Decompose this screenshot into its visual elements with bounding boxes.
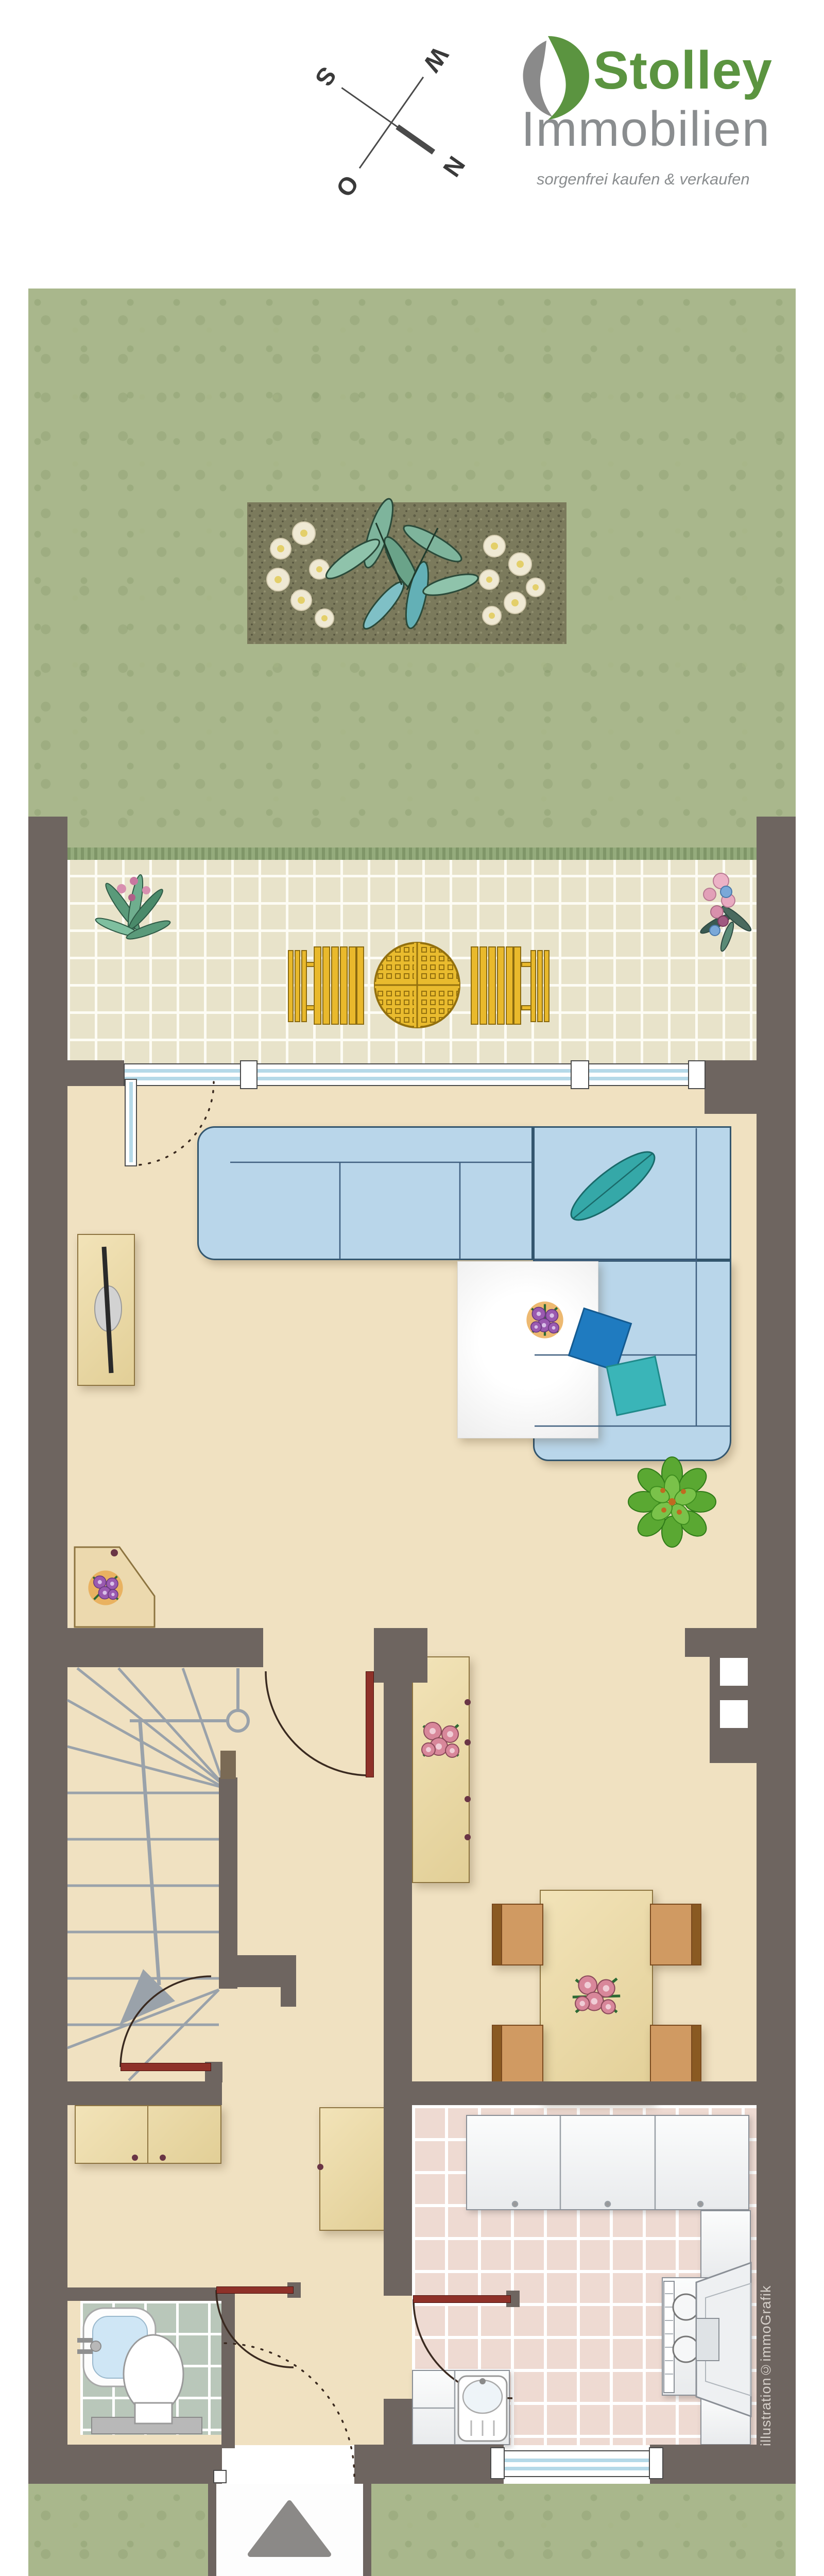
wall-terrace-stub-west	[67, 1060, 124, 1086]
door-stairs-hall	[121, 2063, 211, 2071]
terrace-window-band	[124, 1063, 705, 1086]
window-glass	[125, 1069, 703, 1073]
wall-wc-north	[67, 2287, 235, 2301]
tv-lowboard	[77, 1234, 135, 1386]
compass-label-w: W	[418, 42, 454, 77]
door-kitchen	[413, 2295, 511, 2303]
landing-wall-left	[208, 2484, 216, 2576]
chair-backrest	[492, 1904, 502, 1965]
sofa-corner-section	[533, 1126, 731, 1260]
compass-ns-axis	[341, 88, 431, 150]
dining-table	[540, 1890, 653, 2103]
landing-wall-right	[363, 2484, 371, 2576]
coffee-table	[457, 1261, 598, 1438]
chair-backrest	[492, 2025, 502, 2087]
sideboard-knob	[465, 1699, 471, 1705]
floorplan-page: Stolley Immobilien sorgenfrei kaufen & v…	[0, 0, 824, 2576]
window-mullion	[240, 1060, 257, 1089]
compass-label-o: O	[330, 170, 364, 201]
brand-title: Stolley	[593, 40, 772, 101]
wall-living-south-stub	[374, 1628, 427, 1683]
sideboard	[412, 1656, 470, 1883]
kitchen-counter-north	[466, 2115, 749, 2210]
chimney-vent	[720, 1658, 748, 1686]
wall-terrace-stub-east	[705, 1060, 757, 1114]
window-glass	[505, 2459, 649, 2462]
chimney-block	[710, 1628, 757, 1763]
wall-bottom-mid	[354, 2445, 504, 2484]
garden-top	[28, 289, 796, 848]
compass-label-s: S	[310, 62, 341, 91]
sideboard-knob	[465, 1834, 471, 1840]
window-glass	[125, 1077, 703, 1080]
door-wc	[216, 2286, 294, 2294]
wc-tiles	[80, 2301, 221, 2435]
compass-ew-axis	[359, 77, 423, 168]
garden-bottom	[28, 2484, 796, 2576]
wall-dining-kitchen	[412, 2081, 757, 2105]
kitchen-sink-unit	[412, 2370, 510, 2445]
front-door-hinge-post	[213, 2470, 227, 2483]
wall-living-south-west	[67, 1628, 263, 1667]
compass-label-n: N	[437, 151, 470, 181]
dining-chair	[650, 2025, 701, 2087]
wall-wc-east	[221, 2287, 235, 2448]
window-post	[649, 2447, 663, 2479]
brand-subtitle: Immobilien	[521, 101, 770, 158]
kitchen-stove-block	[662, 2277, 751, 2396]
terrace-grass-fringe	[67, 848, 757, 860]
sideboard-knob	[465, 1796, 471, 1802]
sofa-top-section	[197, 1126, 533, 1260]
kitchen-window	[504, 2450, 650, 2477]
wall-hall-kitchen	[384, 1683, 412, 2296]
brand-tagline: sorgenfrei kaufen & verkaufen	[537, 170, 750, 189]
dining-chair	[492, 2025, 543, 2087]
dining-chair	[650, 1904, 701, 1965]
window-glass	[505, 2467, 649, 2470]
dining-chair	[492, 1904, 543, 1965]
entrance-landing	[216, 2484, 364, 2576]
terrace-door-leaf-open	[125, 1079, 137, 1166]
window-mullion	[571, 1060, 589, 1089]
window-mullion	[688, 1060, 706, 1089]
chair-backrest	[691, 1904, 701, 1965]
wall-bottom-west	[28, 2445, 222, 2484]
window-post	[490, 2447, 505, 2479]
hall-cabinet	[319, 2107, 388, 2231]
chimney-vent	[720, 1700, 748, 1728]
wardrobe-divider	[147, 2106, 148, 2163]
terrace-tiles	[67, 848, 757, 1066]
chair-backrest	[691, 2025, 701, 2087]
kitchen-counter-east-upper	[700, 2210, 751, 2278]
wardrobe-knob	[132, 2155, 138, 2161]
wall-stairs-south	[67, 2081, 222, 2105]
kitchen-counter-east-lower	[700, 2395, 751, 2445]
door-glass	[129, 1082, 133, 1162]
wardrobe-knob	[160, 2155, 166, 2161]
wall-left-exterior	[28, 817, 67, 2484]
hall-cabinet-knob	[317, 2164, 323, 2170]
door-living-stairs	[366, 1671, 374, 1777]
sideboard-knob	[465, 1739, 471, 1745]
wall-bottom-east	[650, 2445, 796, 2484]
illustrator-credit: illustration©immoGrafik	[758, 2206, 777, 2446]
compass-north-arrow	[397, 127, 433, 152]
compass-rose: N S O W	[264, 0, 516, 245]
wall-hall-kitchen-lower	[384, 2399, 412, 2446]
